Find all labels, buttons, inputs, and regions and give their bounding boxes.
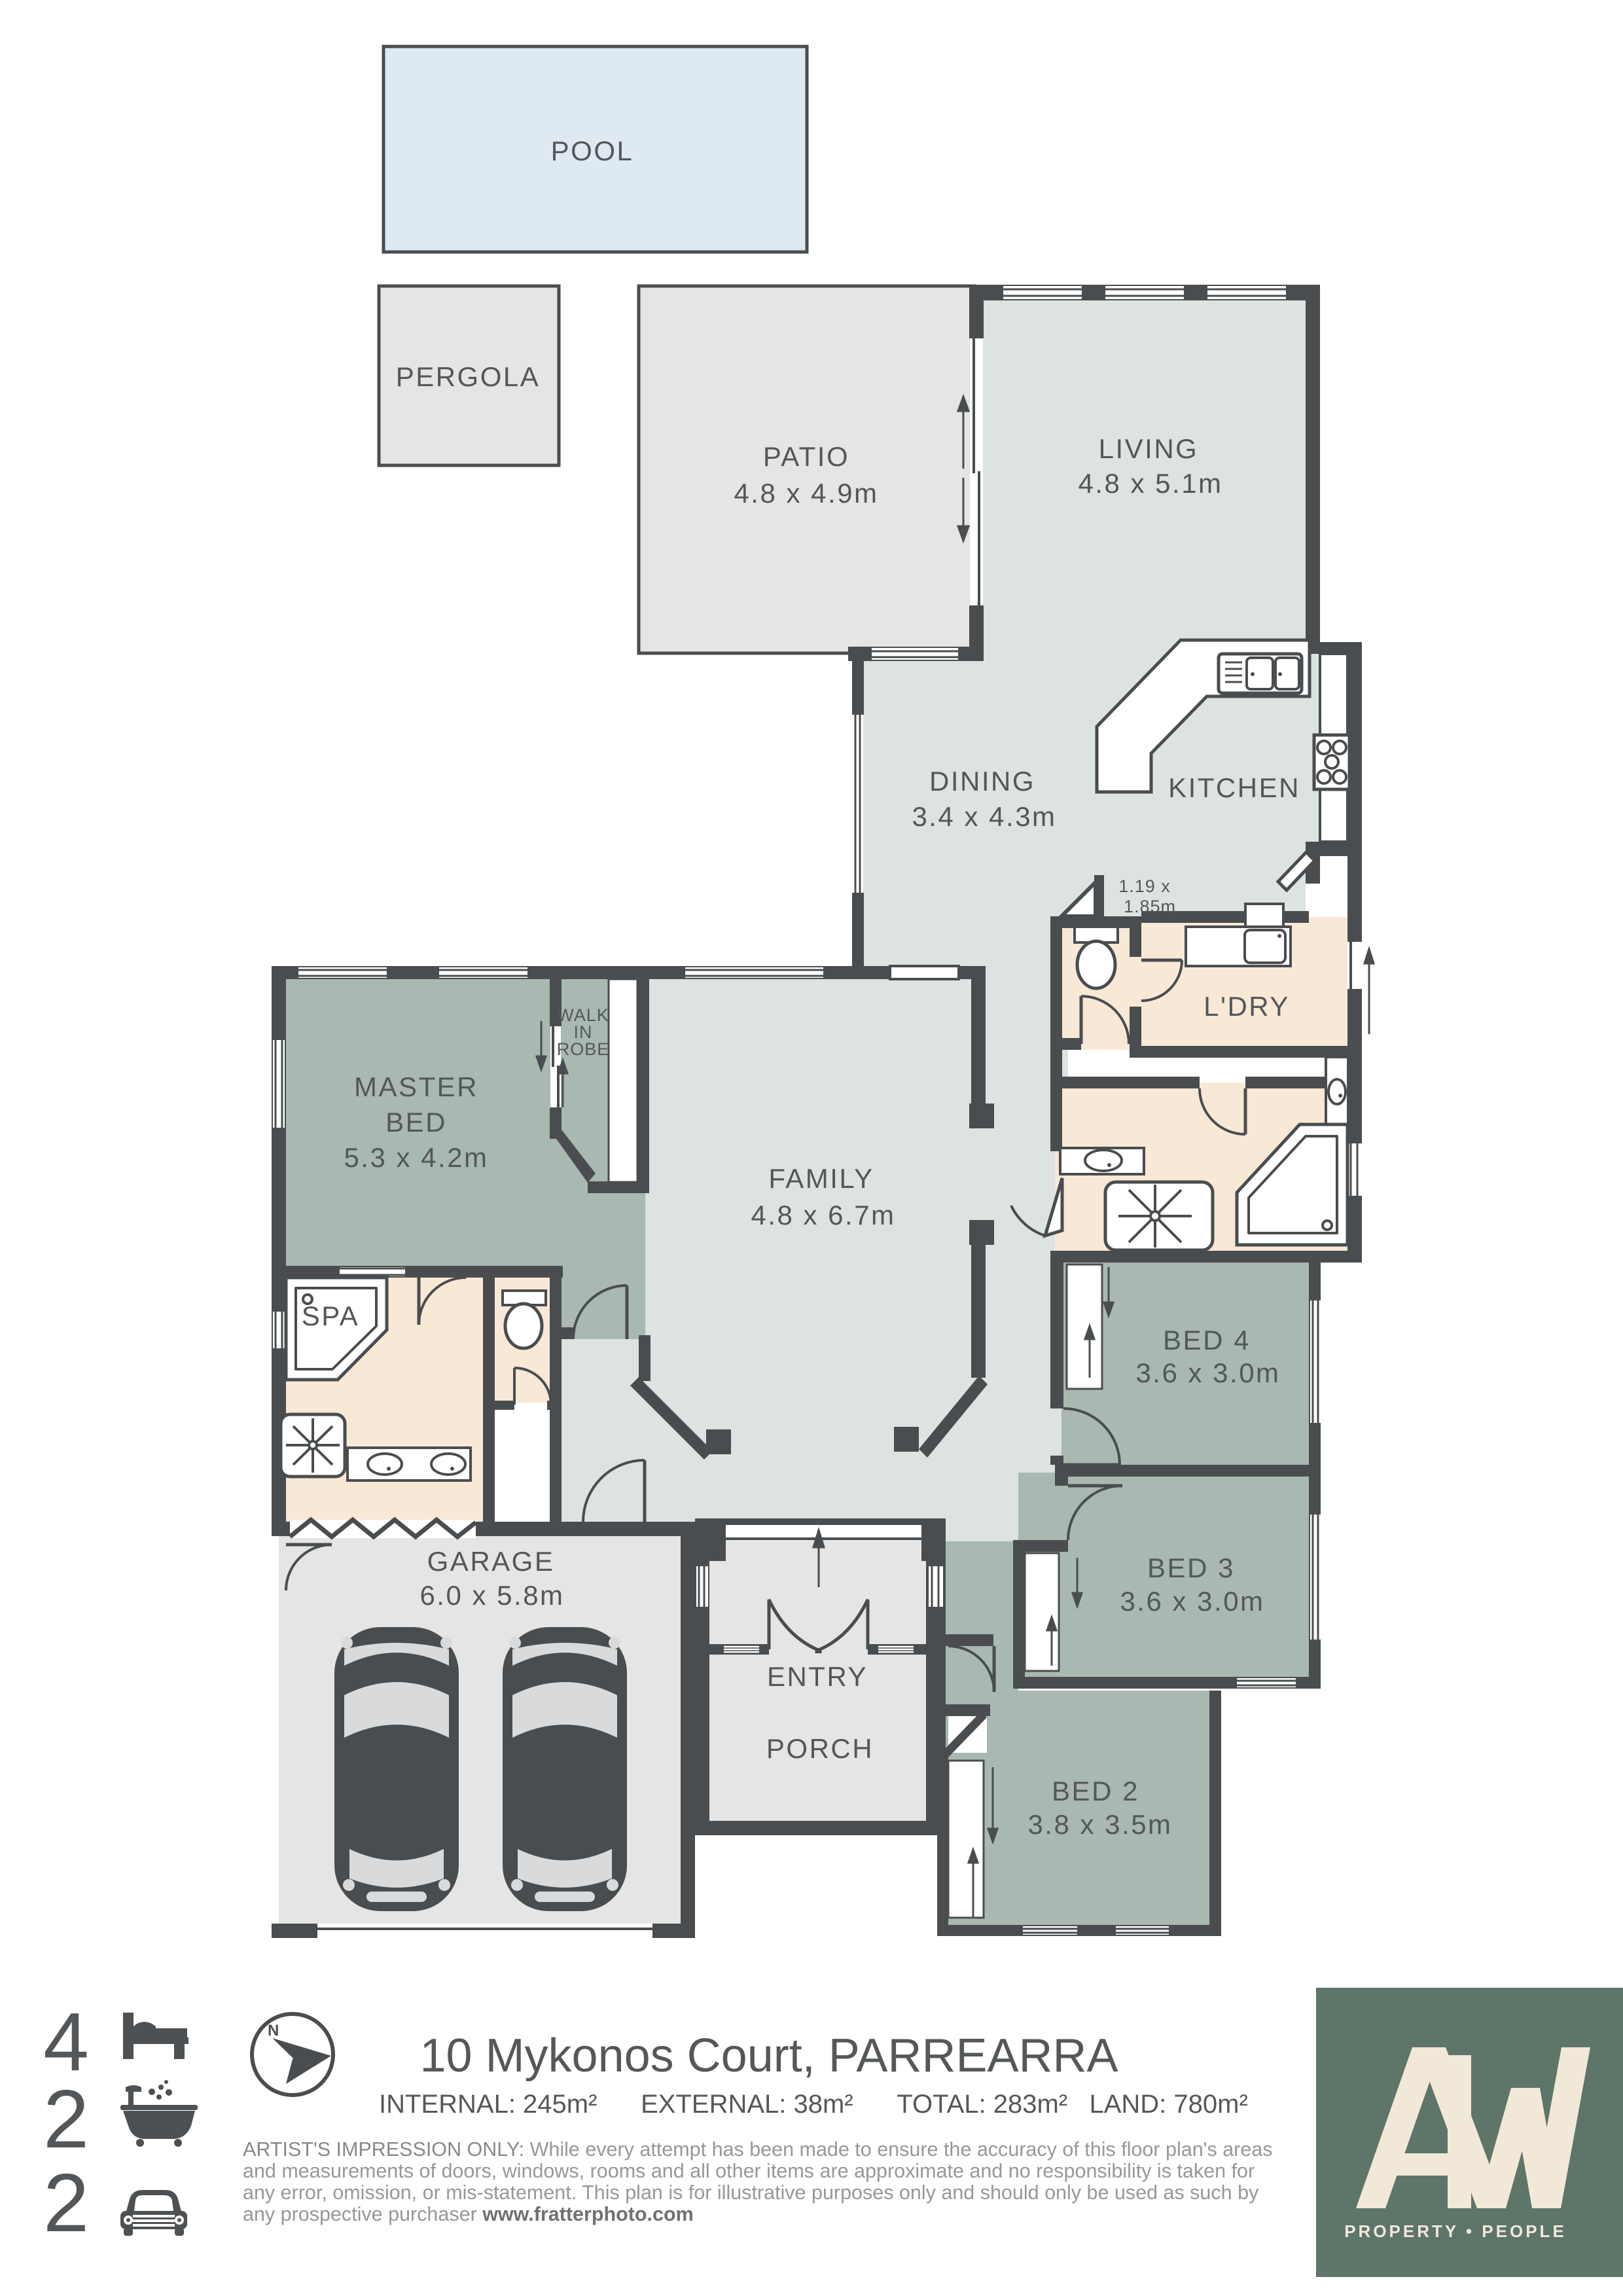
svg-text:BED 3: BED 3 — [1147, 1552, 1235, 1583]
svg-text:ARTIST'S IMPRESSION ONLY: Whil: ARTIST'S IMPRESSION ONLY: While every at… — [243, 2138, 1273, 2161]
svg-text:PORCH: PORCH — [766, 1733, 874, 1764]
svg-text:1.19 x: 1.19 x — [1118, 876, 1171, 896]
svg-text:FAMILY: FAMILY — [768, 1163, 874, 1194]
svg-text:BED 2: BED 2 — [1052, 1776, 1139, 1806]
svg-text:6.0 x 5.8m: 6.0 x 5.8m — [419, 1580, 564, 1611]
svg-text:3.8 x 3.5m: 3.8 x 3.5m — [1027, 1809, 1172, 1840]
svg-text:3.6 x 3.0m: 3.6 x 3.0m — [1120, 1586, 1264, 1617]
svg-text:3.6 x 3.0m: 3.6 x 3.0m — [1135, 1357, 1280, 1388]
svg-text:LIVING: LIVING — [1099, 433, 1199, 464]
svg-text:GARAGE: GARAGE — [427, 1546, 555, 1577]
svg-text:PROPERTY • PEOPLE: PROPERTY • PEOPLE — [1344, 2221, 1567, 2241]
svg-text:5.3 x 4.2m: 5.3 x 4.2m — [344, 1142, 488, 1173]
svg-text:PATIO: PATIO — [763, 441, 849, 472]
svg-text:2: 2 — [43, 2157, 89, 2249]
svg-text:1.85m: 1.85m — [1124, 897, 1176, 916]
svg-text:MASTER: MASTER — [354, 1071, 478, 1102]
svg-text:2: 2 — [43, 2073, 89, 2165]
svg-text:BED 4: BED 4 — [1163, 1325, 1251, 1355]
svg-text:L'DRY: L'DRY — [1204, 991, 1290, 1022]
svg-text:10 Mykonos Court, PARREARRA: 10 Mykonos Court, PARREARRA — [419, 2030, 1118, 2082]
svg-text:ROBE: ROBE — [557, 1039, 610, 1059]
svg-text:POOL: POOL — [551, 135, 634, 166]
svg-text:PERGOLA: PERGOLA — [396, 361, 541, 392]
svg-text:4.8 x 4.9m: 4.8 x 4.9m — [734, 478, 878, 509]
svg-text:ENTRY: ENTRY — [767, 1661, 868, 1692]
svg-text:4.8 x 5.1m: 4.8 x 5.1m — [1078, 468, 1222, 499]
svg-text:DINING: DINING — [929, 766, 1035, 797]
svg-text:3.4 x 4.3m: 3.4 x 4.3m — [912, 801, 1056, 832]
svg-text:any prospective purchaser www.: any prospective purchaser www.fratterpho… — [243, 2203, 694, 2225]
svg-text:SPA: SPA — [302, 1300, 359, 1331]
svg-text:N: N — [268, 2022, 279, 2039]
svg-text:and measurements of doors, win: and measurements of doors, windows, room… — [243, 2160, 1255, 2182]
svg-text:KITCHEN: KITCHEN — [1168, 772, 1300, 803]
svg-text:INTERNAL: 245m² EXTERNAL: INTERNAL: 245m² EXTERNAL: 38m² TOTAL: 28… — [379, 2090, 1248, 2119]
svg-text:4.8 x 6.7m: 4.8 x 6.7m — [751, 1200, 895, 1230]
svg-text:any error, omission, or mis-st: any error, omission, or mis-statement. T… — [243, 2181, 1259, 2204]
svg-text:BED: BED — [385, 1107, 447, 1138]
